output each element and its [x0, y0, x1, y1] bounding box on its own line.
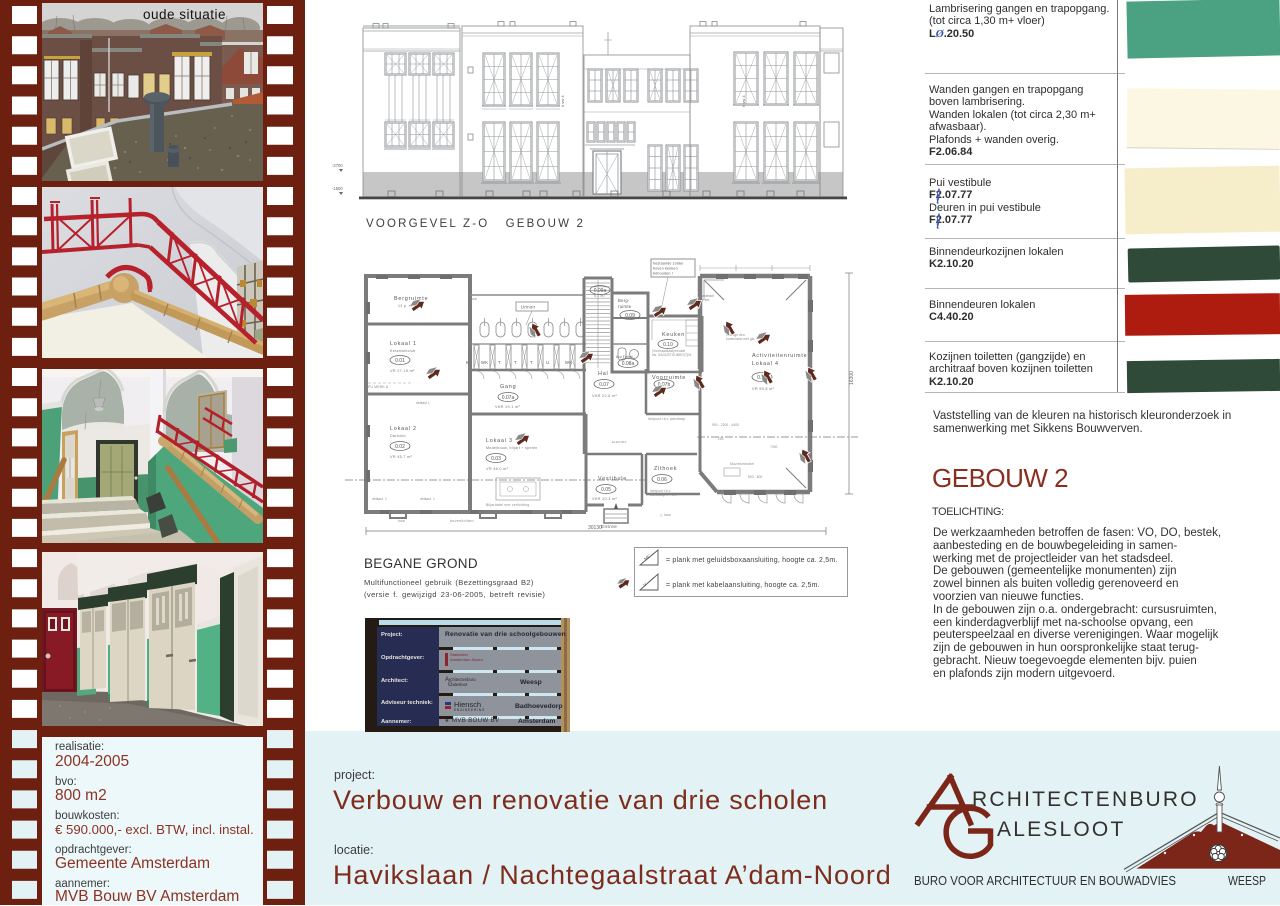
svg-text:hwa: hwa	[398, 519, 405, 523]
svg-text:0.03: 0.03	[491, 456, 501, 462]
svg-text:900 - 2200 - 4400: 900 - 2200 - 4400	[712, 423, 739, 427]
svg-text:Hal: Hal	[598, 371, 609, 377]
svg-text:30130: 30130	[588, 525, 602, 531]
svg-text:VKR 22.6 m²: VKR 22.6 m²	[592, 394, 617, 398]
svg-text:0.05: 0.05	[601, 487, 611, 493]
svg-text:behouden !: behouden !	[653, 272, 673, 276]
svg-text:Vestibule: Vestibule	[598, 476, 627, 482]
svg-text:Urinoir: Urinoir	[521, 305, 536, 310]
svg-text:800 - 800: 800 - 800	[748, 475, 762, 479]
svg-text:Modelbouw, biljart + spelen: Modelbouw, biljart + spelen	[486, 446, 538, 450]
svg-text:= plank met geluidsboxaansl: = plank met geluidsboxaansluiting, hoogt…	[666, 557, 838, 564]
svg-text:Gang: Gang	[500, 384, 516, 390]
svg-text:Lokaal 3: Lokaal 3	[486, 438, 513, 444]
svg-text:Entree: Entree	[601, 524, 617, 529]
svg-text:= plank met kabelaansluitin: = plank met kabelaansluiting, hoogte ca.…	[666, 582, 820, 589]
svg-text:T: T	[498, 360, 501, 365]
svg-text:VR 45.7 m²: VR 45.7 m²	[390, 455, 413, 459]
svg-text:Lokaal 4: Lokaal 4	[752, 361, 779, 367]
svg-text:0.07a: 0.07a	[502, 395, 515, 401]
svg-text:div. SAGUSTOUBRO(T)M: div. SAGUSTOUBRO(T)M	[652, 353, 691, 357]
svg-text:bovenlichten: bovenlichten	[450, 519, 474, 523]
svg-text:0.09a: 0.09a	[594, 288, 607, 294]
svg-text:h vw 4: h vw 4	[741, 95, 746, 107]
svg-text:boven keuken: boven keuken	[653, 267, 678, 271]
svg-text:WK: WK	[481, 360, 488, 365]
svg-text:K: K	[466, 360, 469, 365]
svg-text:ALESLOOT: ALESLOOT	[997, 818, 1125, 841]
svg-text:△ hwa: △ hwa	[660, 513, 671, 517]
svg-text:lichtpunt t.b.v. wandlamp: lichtpunt t.b.v. wandlamp	[648, 417, 685, 421]
svg-text:BURO VOOR ARCHITECTUUR EN BOUW: BURO VOOR ARCHITECTUUR EN BOUWADVIES	[914, 873, 1176, 888]
svg-text:h vw 4: h vw 4	[560, 95, 565, 107]
svg-text:ELEKTRA: ELEKTRA	[612, 440, 626, 444]
svg-text:bestaande zolder: bestaande zolder	[653, 262, 684, 266]
svg-text:oude situatie: oude situatie	[143, 7, 226, 22]
svg-text:0.09: 0.09	[625, 313, 635, 319]
svg-text:RCHITECTENBURO: RCHITECTENBURO	[972, 788, 1199, 811]
svg-text:wandlamp h = 2m: wandlamp h = 2m	[650, 493, 677, 497]
svg-text:ruimte: ruimte	[618, 304, 632, 309]
svg-text:Zithoek: Zithoek	[654, 466, 677, 472]
svg-text:0.07: 0.07	[599, 382, 609, 388]
svg-text:detkast 1: detkast 1	[416, 401, 430, 405]
svg-text:PU MERK A: PU MERK A	[368, 385, 389, 389]
svg-text:VKR 10.3 m²: VKR 10.3 m²	[592, 497, 617, 501]
svg-text:0.10: 0.10	[663, 342, 673, 348]
svg-text:WK: WK	[565, 360, 572, 365]
svg-text:VR 99.8 m²: VR 99.8 m²	[752, 387, 775, 391]
svg-text:16300: 16300	[849, 371, 855, 385]
svg-text:VR 27.19 m²: VR 27.19 m²	[390, 369, 415, 373]
svg-text:detkast. 1: detkast. 1	[420, 497, 435, 501]
svg-text:T: T	[530, 360, 533, 365]
svg-text:Keuken: Keuken	[662, 332, 685, 338]
svg-text:7300: 7300	[770, 445, 778, 449]
svg-text:-2700: -2700	[332, 163, 343, 168]
svg-text:0.08a: 0.08a	[622, 361, 635, 367]
svg-text:T: T	[514, 360, 517, 365]
svg-text:Keramiekclub: Keramiekclub	[390, 349, 415, 353]
svg-text:VR 46.0 m²: VR 46.0 m²	[486, 467, 509, 471]
svg-text:bovlendeel met gla: bovlendeel met gla	[726, 337, 755, 341]
svg-text:-1500: -1500	[332, 186, 343, 191]
svg-text:Muziekmeubel: Muziekmeubel	[730, 462, 754, 466]
svg-text:WEESP: WEESP	[1228, 873, 1266, 888]
svg-text:Activiteitenruimte: Activiteitenruimte	[752, 353, 807, 359]
svg-text:Berg-: Berg-	[618, 298, 630, 303]
svg-text:Lokaal 2: Lokaal 2	[390, 426, 417, 432]
svg-text:5.1 m²: 5.1 m²	[594, 294, 605, 298]
svg-text:U: U	[546, 360, 549, 365]
svg-text:Biljarttafel met verlichting: Biljarttafel met verlichting	[486, 503, 529, 507]
svg-text:MC: MC	[643, 553, 652, 562]
svg-text:250: 250	[718, 437, 724, 441]
svg-text:hwa: hwa	[470, 297, 477, 301]
svg-text:Lokaal 1: Lokaal 1	[390, 341, 417, 347]
svg-text:detkast. 2: detkast. 2	[372, 497, 387, 501]
svg-text:0.01: 0.01	[395, 358, 405, 364]
svg-text:Dartclub: Dartclub	[390, 434, 406, 438]
svg-text:0.02: 0.02	[395, 444, 405, 450]
svg-text:VKR 19.1 m²: VKR 19.1 m²	[495, 405, 520, 409]
svg-text:0.06: 0.06	[657, 477, 667, 483]
